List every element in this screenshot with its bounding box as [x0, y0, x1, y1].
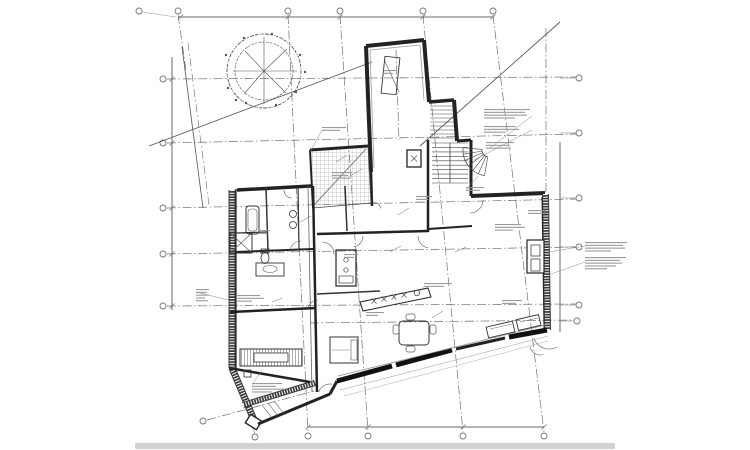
fixture — [344, 268, 348, 272]
tree — [225, 33, 306, 108]
wall — [471, 193, 545, 196]
fixtures — [230, 56, 544, 377]
floor-plan-page — [0, 0, 750, 450]
wall — [457, 140, 471, 141]
grid-bubble — [576, 195, 582, 201]
door-swing — [268, 403, 278, 416]
annotation-text — [484, 109, 530, 119]
grid-bubble — [490, 8, 496, 14]
fixture — [384, 59, 399, 92]
grid-bubble — [576, 130, 582, 136]
stairs-and-core — [407, 106, 488, 183]
annotation-text — [484, 126, 519, 133]
annotation-text — [416, 196, 432, 203]
vanity — [256, 263, 284, 276]
fixture — [339, 276, 353, 283]
annotation-text — [455, 247, 466, 252]
grid-line — [310, 320, 574, 323]
building-walls — [229, 40, 548, 430]
grid-element — [142, 12, 176, 17]
toilet — [261, 253, 269, 264]
annotation-text — [322, 127, 346, 131]
fixture — [344, 258, 348, 262]
wall — [340, 336, 548, 390]
grid-line — [207, 391, 314, 420]
wc-fixture — [290, 222, 297, 229]
annotation-text — [300, 216, 311, 222]
grid-line — [396, 50, 399, 140]
grid-bubble — [305, 433, 311, 439]
grid-line — [493, 15, 544, 432]
fixture — [254, 353, 288, 362]
facade-window — [456, 338, 505, 349]
grid-bubble — [365, 433, 371, 439]
annotation-text — [432, 311, 443, 318]
door-swing — [284, 190, 292, 198]
door-swing — [262, 405, 272, 418]
furniture-item — [406, 346, 415, 352]
leader-line — [551, 262, 585, 274]
annotation-text — [398, 208, 409, 215]
annotation-text — [466, 187, 484, 191]
wall — [454, 100, 457, 141]
annotation-text — [236, 295, 264, 302]
annotation-text — [384, 70, 397, 74]
tree-part — [264, 71, 286, 93]
wall — [236, 249, 313, 252]
grid-line — [167, 77, 576, 79]
door-swing — [322, 242, 334, 254]
wall — [330, 381, 337, 394]
grid-bubble — [252, 434, 258, 440]
furniture-item — [393, 325, 399, 334]
furniture-item — [430, 325, 436, 334]
grid-line — [178, 15, 186, 70]
diagonal-boundary — [420, 22, 560, 146]
annotation-text — [366, 312, 384, 316]
grid-bubble — [200, 418, 206, 424]
facade-window — [396, 350, 452, 365]
door-swing — [470, 200, 483, 213]
door-swing — [418, 236, 428, 248]
annotation-text — [495, 224, 525, 231]
grid-bubble — [541, 433, 547, 439]
furniture-item — [490, 324, 512, 329]
wall — [308, 186, 312, 392]
wc-fixture — [290, 211, 297, 218]
tree-part — [244, 71, 264, 94]
grid-bubble — [175, 8, 181, 14]
door-swing — [274, 401, 284, 414]
annotation-text — [272, 298, 282, 302]
annotation-text — [585, 257, 626, 269]
annotation-text — [585, 242, 627, 252]
boundary-line — [182, 47, 203, 208]
grid-bubble — [160, 76, 166, 82]
grid-line — [167, 247, 576, 254]
grid-bubble — [420, 8, 426, 14]
wall — [229, 368, 310, 382]
wall — [298, 187, 299, 249]
grid-bubble — [160, 205, 166, 211]
leader-line — [474, 130, 532, 160]
wall — [424, 40, 429, 102]
annotation-text — [502, 300, 522, 304]
fixture — [248, 209, 257, 231]
wall — [237, 186, 311, 190]
grid-bubble — [460, 433, 466, 439]
grid-bubble — [576, 302, 582, 308]
tree-part — [245, 51, 264, 71]
dining-table — [399, 321, 429, 345]
grid-bubble — [285, 8, 291, 14]
wing-wardrobe — [381, 56, 400, 94]
door-swing — [373, 202, 381, 209]
wall — [428, 226, 472, 229]
door-swing — [530, 347, 543, 355]
wall — [317, 231, 428, 234]
annotation-text — [424, 283, 452, 287]
fixture — [263, 266, 277, 273]
leader-line — [196, 292, 228, 300]
annotation-text — [196, 289, 209, 301]
spine-wall — [313, 186, 317, 392]
grid-bubble — [337, 8, 343, 14]
tree-part — [264, 49, 287, 71]
wall — [429, 100, 454, 102]
wing-stair — [430, 106, 454, 138]
boundary-line — [188, 43, 209, 205]
grid-bubble — [160, 303, 166, 309]
floor-plan-drawing — [0, 0, 750, 450]
drawing-layers — [136, 8, 627, 440]
grid-bubble — [576, 75, 582, 81]
wall — [317, 291, 380, 294]
wall — [266, 187, 268, 251]
sofa — [516, 315, 541, 331]
furniture-item — [406, 314, 415, 320]
wall — [338, 325, 545, 376]
furniture-item — [351, 340, 357, 360]
door-swing — [534, 338, 557, 349]
grid-bubble — [160, 251, 166, 257]
grid-bubble — [136, 8, 142, 14]
wall — [230, 308, 316, 312]
horizontal-scrollbar[interactable] — [135, 443, 615, 449]
annotation-text — [390, 246, 401, 252]
grid-bubble — [574, 318, 580, 324]
